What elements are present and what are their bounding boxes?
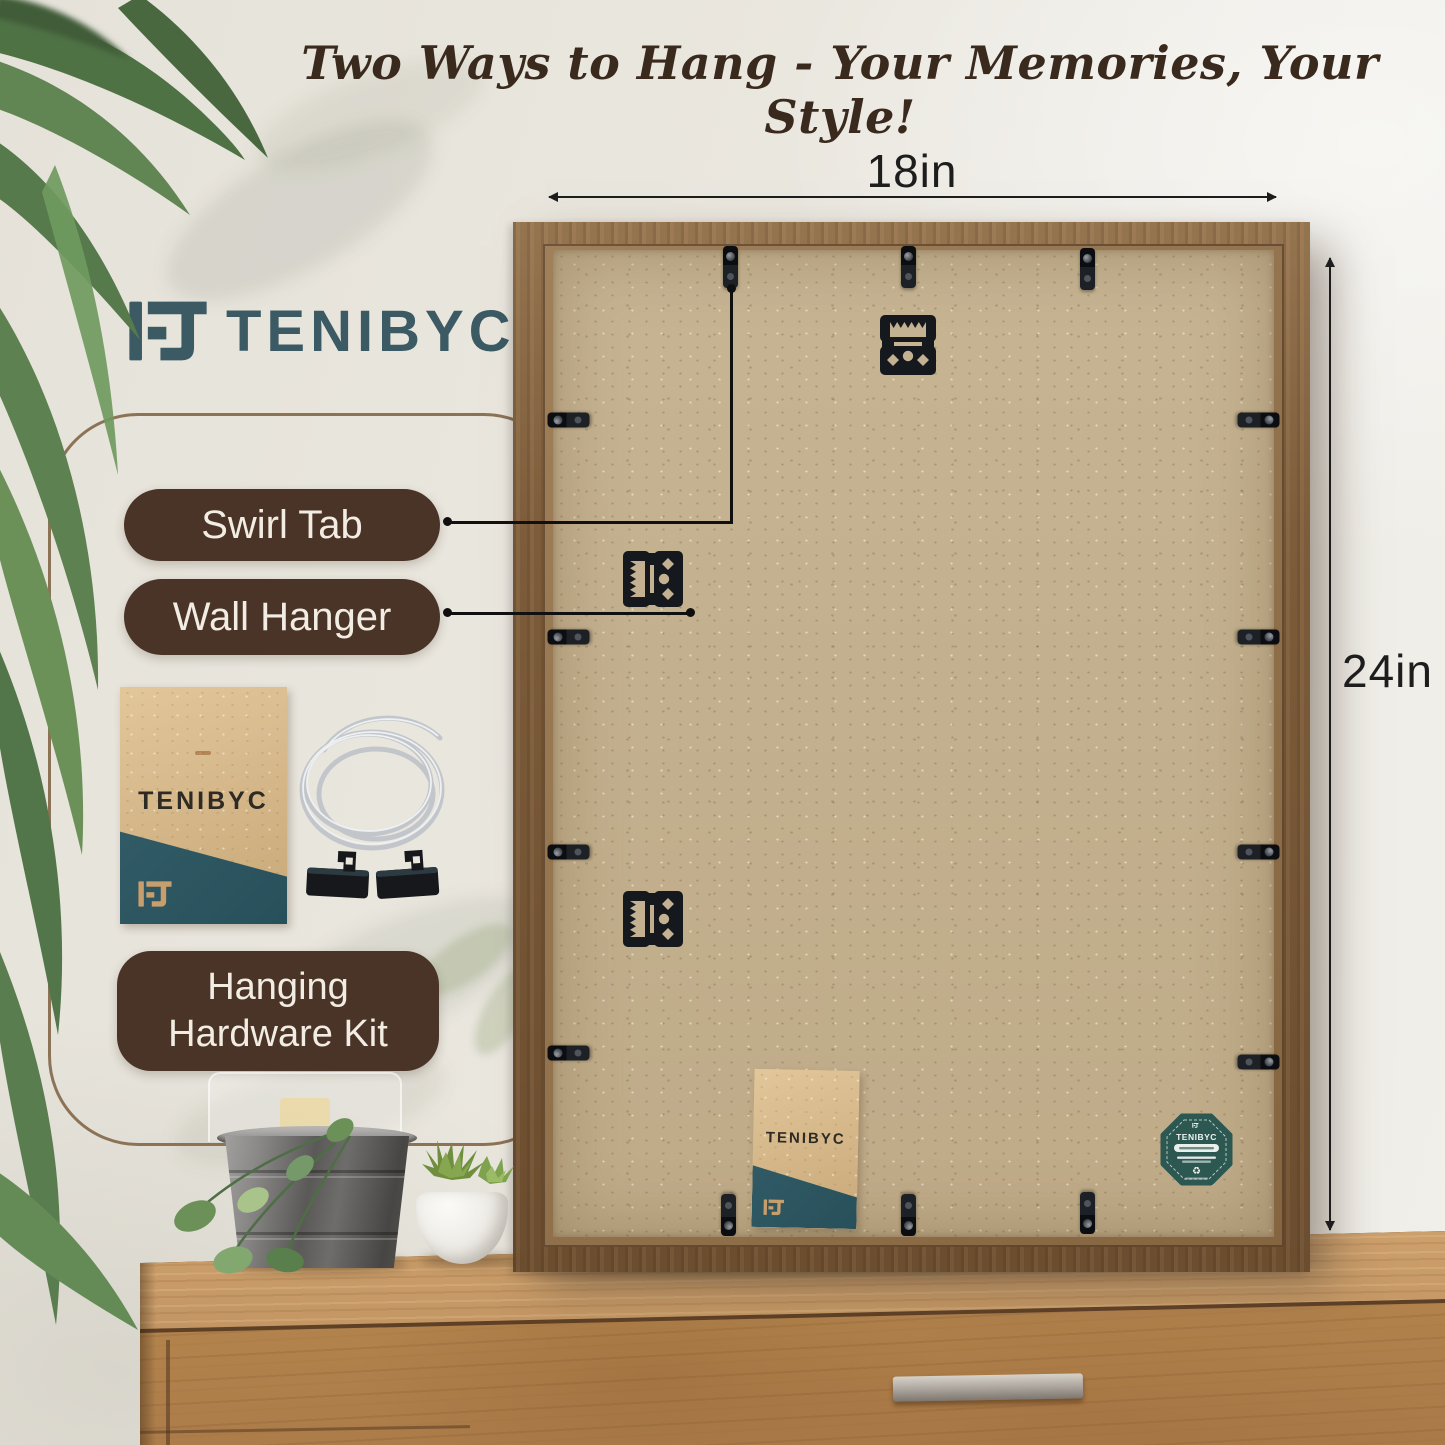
swirl-tab-icon	[1238, 845, 1280, 860]
sawtooth-hanger-icon	[878, 313, 938, 377]
swirl-tab-icon	[901, 246, 916, 288]
product-infographic: Two Ways to Hang - Your Memories, Your S…	[0, 0, 1445, 1445]
swirl-tab-icon	[901, 1194, 916, 1236]
width-dimension-arrow	[549, 196, 1276, 198]
swirl-tab-icon	[1238, 413, 1280, 428]
drawer-handle	[893, 1373, 1083, 1401]
sawtooth-hanger-icon	[621, 889, 685, 949]
drawer-divider	[166, 1340, 170, 1445]
swirl-tab-icon	[1238, 630, 1280, 645]
callout-wall-hanger-line	[447, 612, 690, 615]
height-dimension-label: 24in	[1342, 644, 1433, 698]
swirl-tab-icon	[1080, 1192, 1095, 1234]
swirl-tab-icon	[721, 1194, 736, 1236]
swirl-tab-icon	[1080, 248, 1095, 290]
frame-mdf-board	[553, 250, 1274, 1237]
callout-dot	[443, 608, 452, 617]
swirl-tab-icon	[548, 1046, 590, 1061]
badge-sticker: TENIBYC ♻	[1159, 1112, 1234, 1187]
callout-swirl-tab-line-h	[447, 521, 731, 524]
callout-swirl-tab-line-v	[730, 289, 733, 524]
callout-dot	[443, 517, 452, 526]
frame-envelope: TENIBYC	[751, 1069, 859, 1229]
recycle-icon: ♻	[1192, 1166, 1201, 1177]
swirl-tab-icon	[548, 845, 590, 860]
frame-envelope-brand: TENIBYC	[753, 1129, 858, 1148]
callout-dot	[686, 608, 695, 617]
callout-dot	[727, 284, 736, 293]
badge-brand: TENIBYC	[1176, 1132, 1217, 1142]
swirl-tab-icon	[548, 413, 590, 428]
palm-plant	[0, 0, 440, 1350]
envelope-logo-icon	[762, 1196, 784, 1218]
width-dimension-label: 18in	[762, 144, 1062, 198]
swirl-tab-icon	[723, 246, 738, 288]
height-dimension-arrow	[1329, 258, 1331, 1230]
sawtooth-hanger-icon	[621, 549, 685, 609]
swirl-tab-icon	[548, 630, 590, 645]
swirl-tab-icon	[1238, 1055, 1280, 1070]
